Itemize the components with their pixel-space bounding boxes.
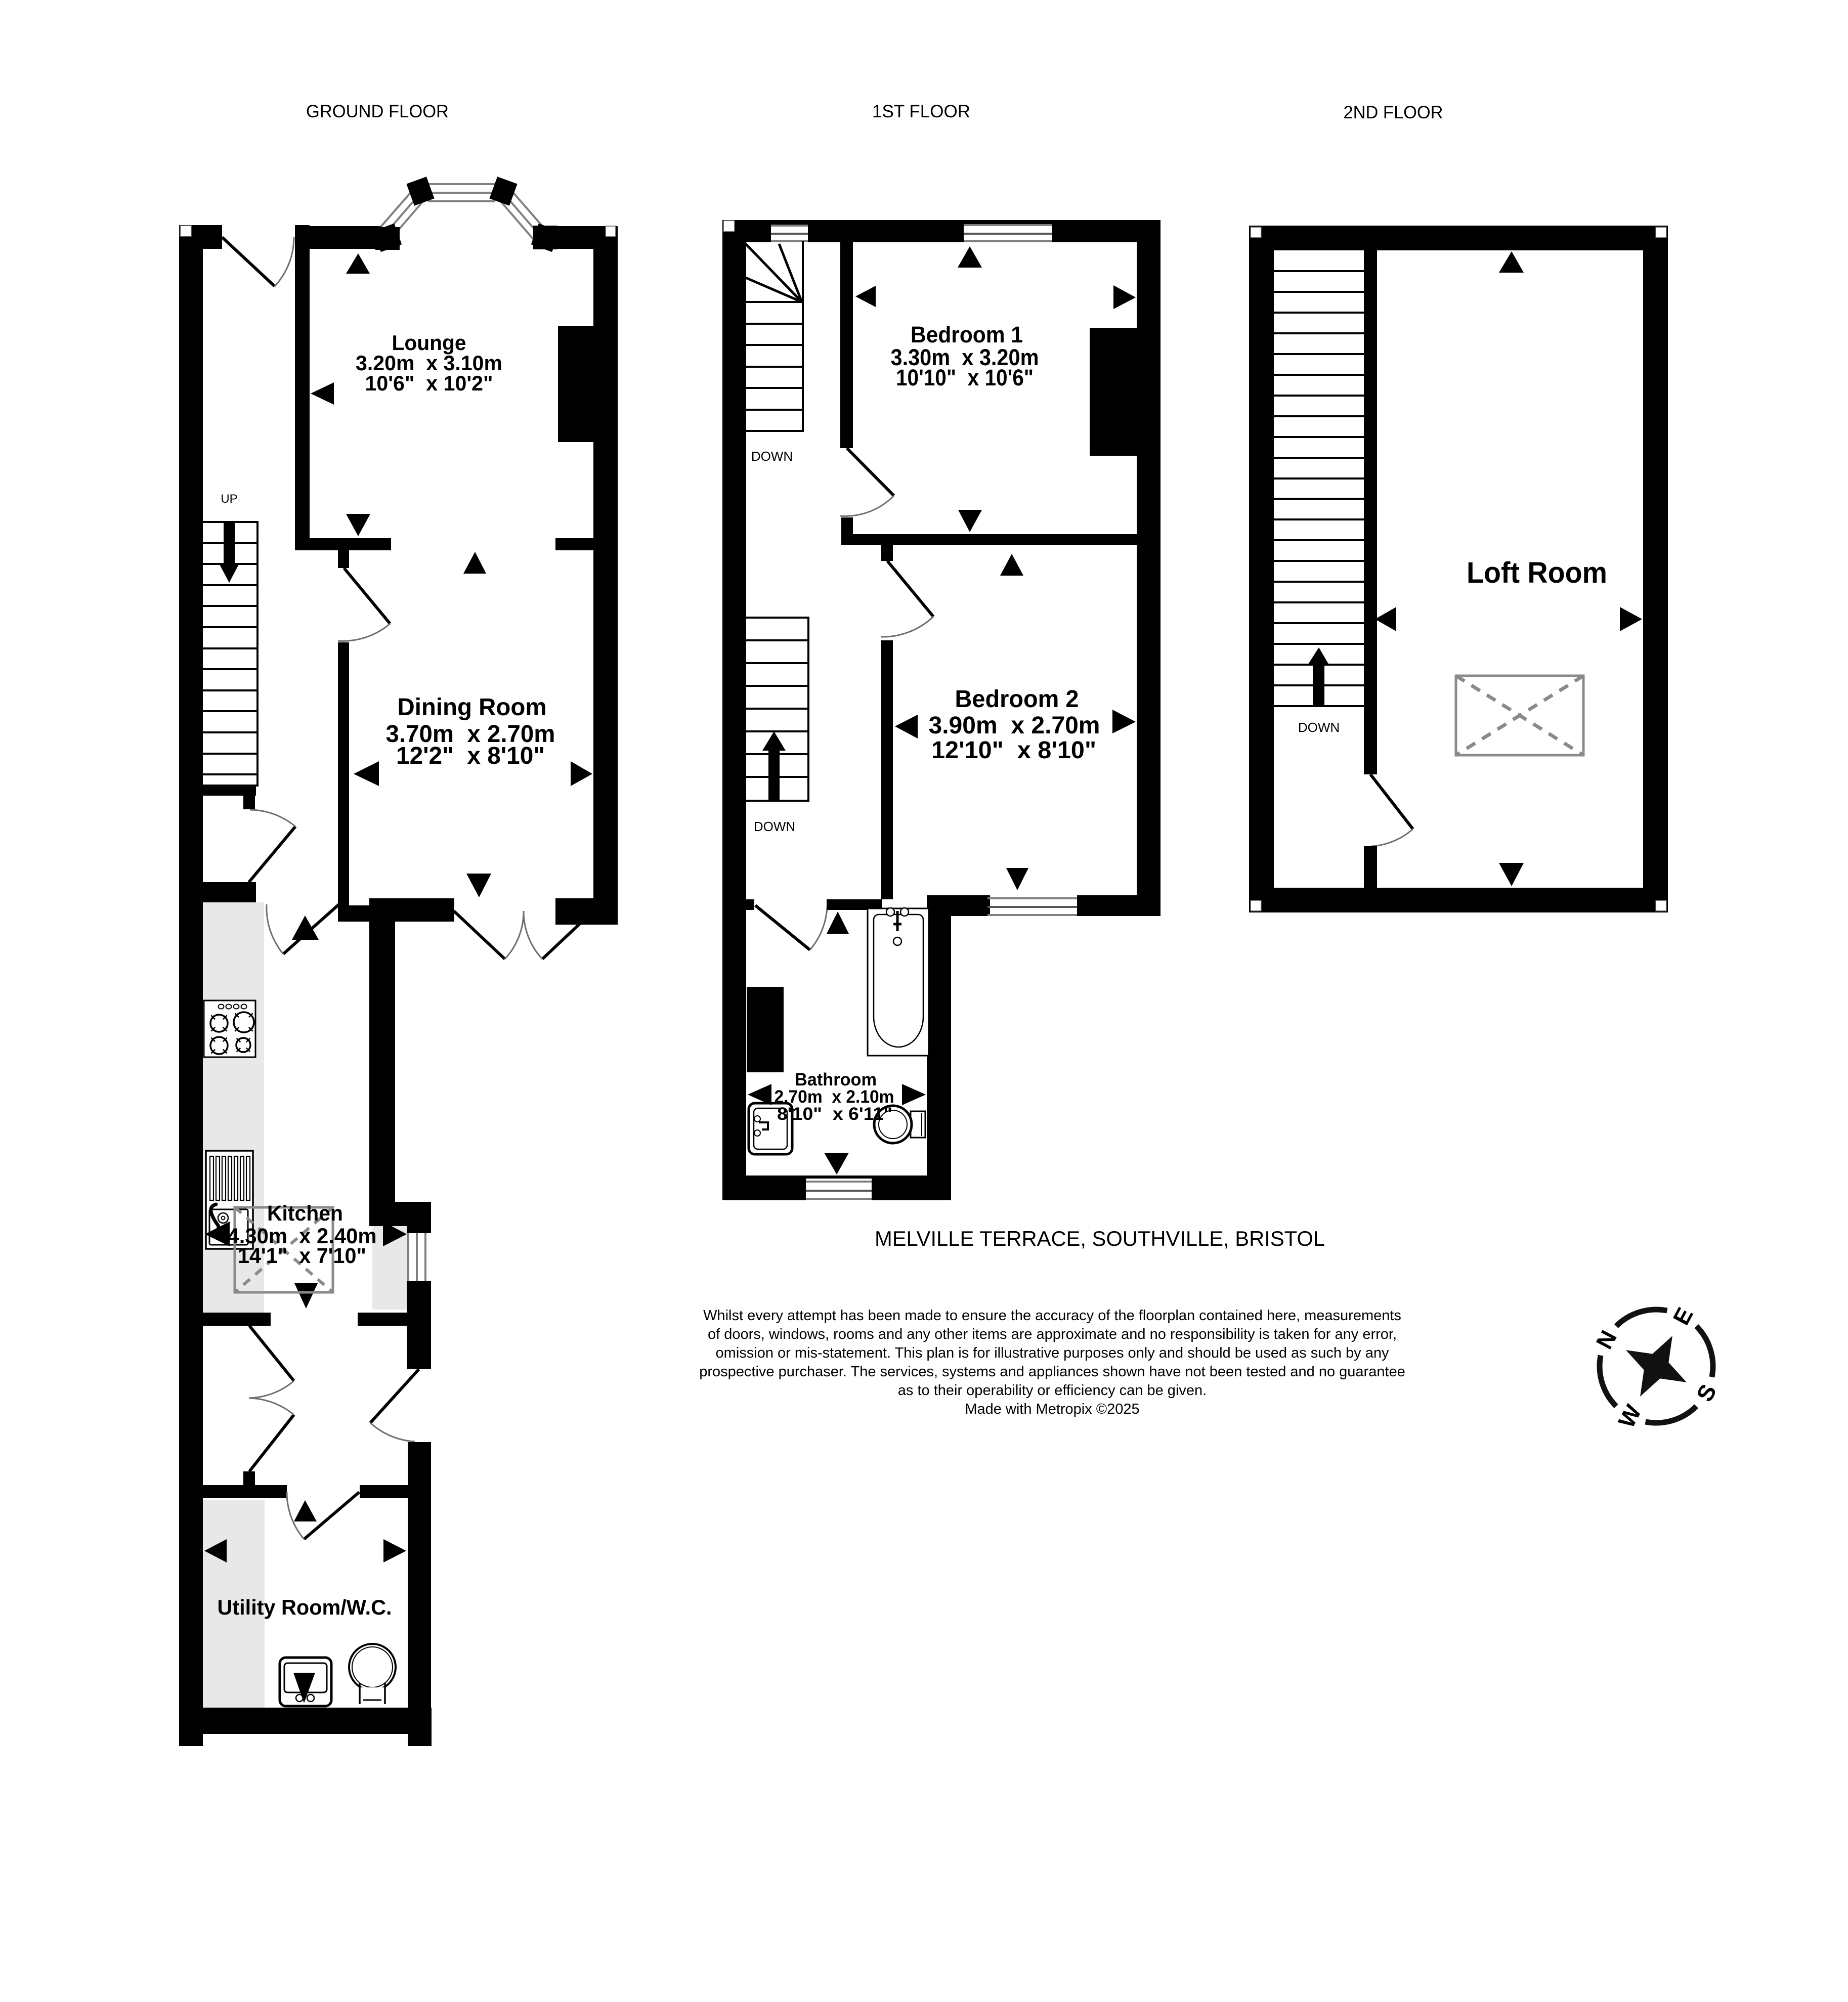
svg-text:12'2" x 8'10": 12'2" x 8'10" — [396, 743, 545, 769]
svg-text:Whilst every attempt has been: Whilst every attempt has been made to en… — [703, 1308, 1401, 1324]
svg-text:DOWN: DOWN — [751, 449, 793, 464]
svg-text:2ND FLOOR: 2ND FLOOR — [1344, 103, 1443, 122]
svg-text:10'10" x 10'6": 10'10" x 10'6" — [896, 365, 1034, 390]
svg-text:Kitchen: Kitchen — [267, 1201, 343, 1226]
svg-text:of doors, windows, rooms and a: of doors, windows, rooms and any other i… — [708, 1326, 1397, 1342]
svg-text:Made with Metropix ©2025: Made with Metropix ©2025 — [965, 1401, 1139, 1417]
svg-text:UP: UP — [221, 492, 237, 506]
svg-text:Utility Room/W.C.: Utility Room/W.C. — [218, 1595, 392, 1619]
svg-text:Dining Room: Dining Room — [398, 694, 547, 721]
svg-text:8'10" x 6'11": 8'10" x 6'11" — [777, 1104, 892, 1124]
svg-text:10'6" x 10'2": 10'6" x 10'2" — [365, 371, 493, 395]
svg-text:omission or mis-statement. Thi: omission or mis-statement. This plan is … — [716, 1345, 1389, 1361]
svg-text:1ST FLOOR: 1ST FLOOR — [872, 102, 970, 121]
svg-text:prospective purchaser. The ser: prospective purchaser. The services, sys… — [699, 1364, 1405, 1380]
svg-text:MELVILLE TERRACE, SOUTHVILLE,: MELVILLE TERRACE, SOUTHVILLE, BRISTOL — [875, 1227, 1325, 1250]
svg-text:DOWN: DOWN — [754, 819, 795, 834]
svg-text:12'10" x 8'10": 12'10" x 8'10" — [931, 737, 1096, 764]
svg-text:Bedroom 2: Bedroom 2 — [955, 686, 1079, 713]
svg-text:Loft Room: Loft Room — [1467, 556, 1607, 589]
svg-text:Bedroom 1: Bedroom 1 — [911, 322, 1023, 347]
svg-text:as to their operability or eff: as to their operability or efficiency ca… — [898, 1382, 1207, 1399]
svg-text:14'1" x 7'10": 14'1" x 7'10" — [238, 1244, 366, 1268]
svg-text:3.90m x 2.70m: 3.90m x 2.70m — [929, 712, 1100, 739]
svg-text:GROUND FLOOR: GROUND FLOOR — [306, 102, 449, 121]
svg-text:DOWN: DOWN — [1298, 720, 1340, 735]
